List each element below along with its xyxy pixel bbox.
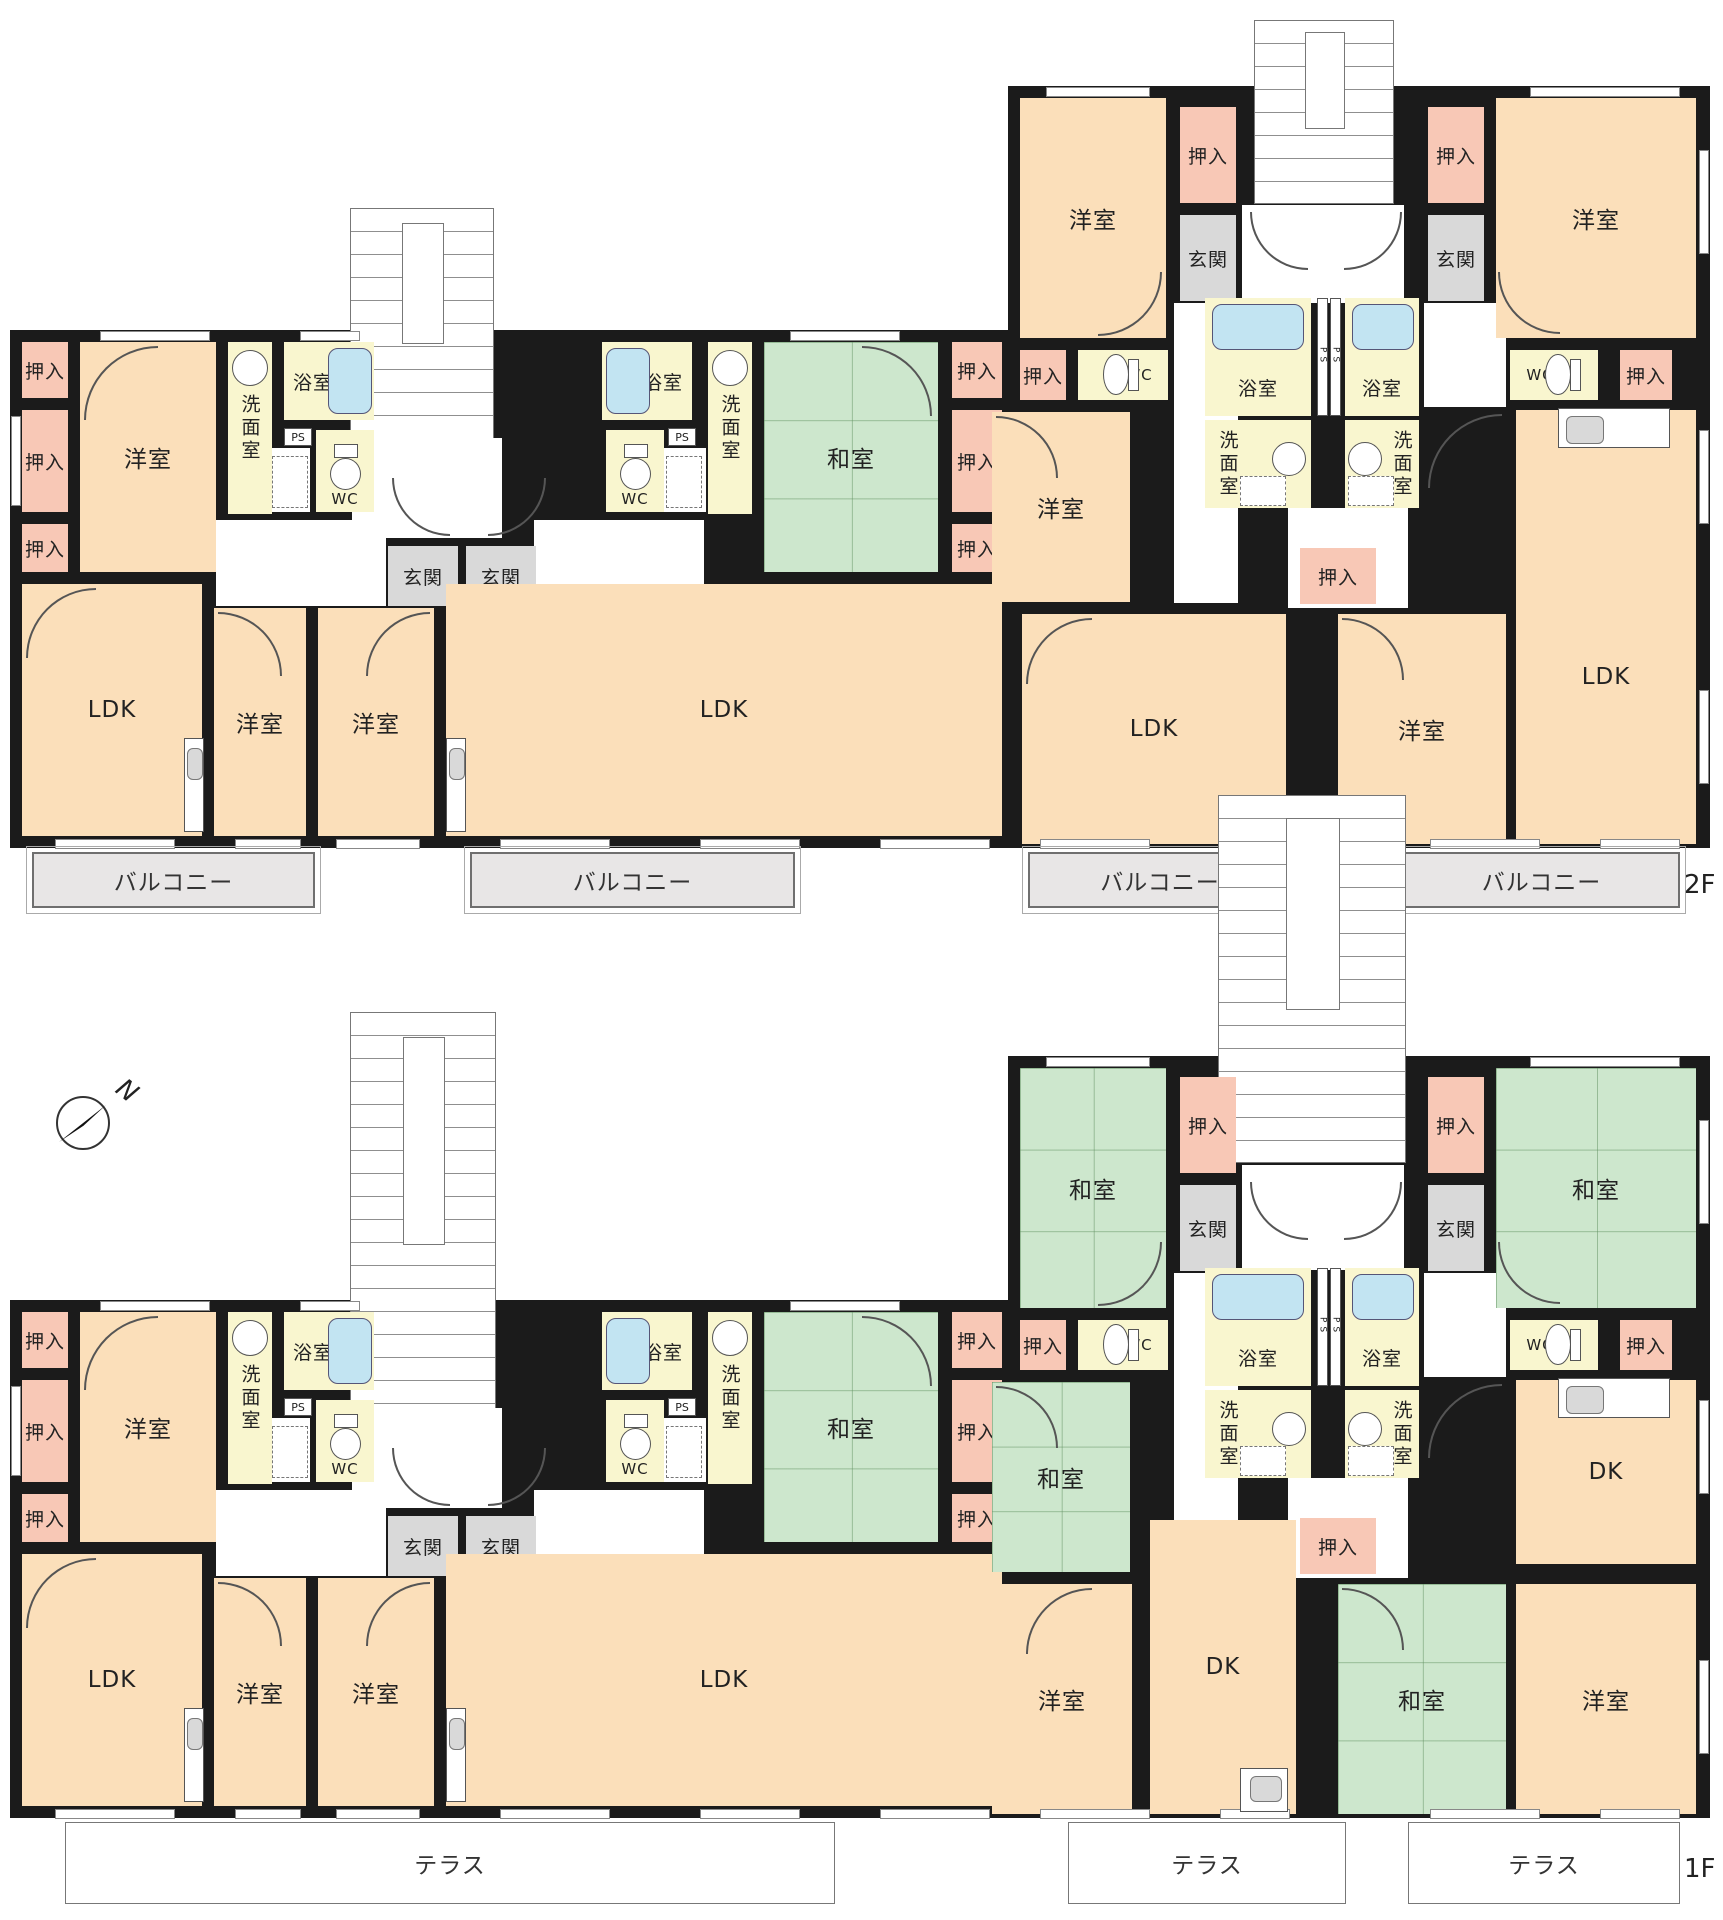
room-label: 洋室: [1069, 201, 1117, 235]
room-label: 押入: [1626, 362, 1666, 389]
bathtub-icon: [606, 348, 650, 414]
toilet-icon: [328, 444, 362, 490]
room-label: 洗面室: [717, 394, 744, 463]
room-ps: PS: [1330, 1268, 1341, 1386]
room-label: 洋室: [124, 440, 172, 474]
window: [300, 331, 360, 341]
toilet-tank: [624, 444, 648, 458]
balcony-label: バルコニー: [114, 863, 234, 897]
room-label: LDK: [1582, 664, 1631, 690]
window: [11, 1386, 21, 1476]
hallway: [1424, 1273, 1506, 1377]
bathtub-icon: [1212, 304, 1304, 350]
compass: N: [56, 1096, 116, 1156]
toilet-bowl: [1103, 1324, 1129, 1366]
room-ps: PS: [1317, 1268, 1328, 1386]
room-ps: PS: [668, 1398, 696, 1416]
room-label: PS: [675, 431, 689, 444]
washer-space: [272, 456, 308, 508]
window: [700, 1809, 800, 1819]
room-label: WC: [621, 490, 648, 508]
toilet-icon: [1103, 1321, 1139, 1367]
room-label: PS: [1331, 1317, 1341, 1336]
toilet-tank: [1570, 359, 1581, 390]
window: [1046, 87, 1150, 97]
hallway: [1424, 303, 1506, 407]
room-label: 玄関: [1188, 1215, 1228, 1242]
room-label: 洋室: [1398, 712, 1446, 746]
compass-circle: [56, 1096, 110, 1150]
room-label: 押入: [1023, 1332, 1063, 1359]
room-genkan: 玄関: [1428, 215, 1484, 301]
toilet-bowl: [1103, 354, 1129, 396]
balcony-label: バルコニー: [1482, 863, 1602, 897]
room-label: 押入: [1188, 1112, 1228, 1139]
balcony-label: バルコニー: [1100, 863, 1220, 897]
window: [790, 331, 900, 341]
room-ps: PS: [284, 428, 312, 446]
window: [1699, 430, 1709, 524]
terrace: テラス: [1068, 1822, 1346, 1904]
terrace-label: テラス: [1508, 1846, 1580, 1880]
balcony: バルコニー: [470, 852, 795, 908]
toilet-tank: [334, 444, 358, 458]
hallway: [216, 1490, 386, 1576]
room-label: 洋室: [124, 1410, 172, 1444]
room-genkan: 玄関: [1428, 1185, 1484, 1271]
window: [1699, 1660, 1709, 1754]
bathtub-icon: [1352, 1274, 1414, 1320]
room-label: WC: [331, 490, 358, 508]
washer-space: [666, 456, 702, 508]
window: [336, 839, 420, 849]
washer-space: [1348, 1446, 1394, 1476]
hallway: [216, 520, 386, 606]
room-oshiire: 押入: [1620, 350, 1672, 400]
room-label: 洗面室: [1215, 1400, 1242, 1469]
kitchen-sink-icon: [187, 748, 203, 780]
washbasin-icon: [1272, 442, 1306, 476]
kitchen-sink-icon: [1566, 416, 1604, 444]
room-label: LDK: [88, 697, 137, 723]
room-oshiire: 押入: [22, 524, 68, 572]
window: [500, 839, 610, 849]
room-label: 押入: [957, 357, 997, 384]
washer-space: [1240, 476, 1286, 506]
toilet-tank: [1128, 359, 1139, 390]
window: [700, 839, 800, 849]
room-oshiire: 押入: [1300, 548, 1376, 604]
room-label: 玄関: [403, 563, 443, 590]
room-label: PS: [291, 431, 305, 444]
staircase: [1254, 20, 1394, 204]
room-label: 押入: [25, 535, 65, 562]
window: [55, 839, 175, 849]
room-label: 和室: [1037, 1460, 1085, 1494]
room-oshiire: 押入: [1020, 1320, 1066, 1370]
toilet-tank: [624, 1414, 648, 1428]
staircase-rail: [1286, 818, 1340, 1010]
window: [1040, 839, 1150, 849]
washer-space: [1348, 476, 1394, 506]
kitchen-sink-icon: [187, 1718, 203, 1750]
room-label: 押入: [1188, 142, 1228, 169]
room-ps: PS: [284, 1398, 312, 1416]
window: [1040, 1809, 1150, 1819]
room-genkan: 玄関: [1180, 215, 1236, 301]
window: [336, 1809, 420, 1819]
room-label: 洋室: [236, 705, 284, 739]
window: [1699, 1120, 1709, 1224]
washbasin-icon: [712, 350, 748, 386]
bathtub-icon: [328, 1318, 372, 1384]
room-oshiire: 押入: [22, 342, 68, 398]
room-label: 浴室: [1362, 1344, 1402, 1371]
floor-label: 2F: [1684, 870, 1716, 900]
room-label: 押入: [25, 448, 65, 475]
room-label: 玄関: [1436, 245, 1476, 272]
room-label: LDK: [1130, 716, 1179, 742]
toilet-bowl: [620, 458, 651, 490]
window: [100, 1301, 210, 1311]
room-genkan: 玄関: [1180, 1185, 1236, 1271]
kitchen-sink-icon: [449, 748, 465, 780]
room-oshiire: 押入: [22, 410, 68, 512]
staircase-rail: [1305, 32, 1346, 129]
window: [1600, 1809, 1680, 1819]
room-label: PS: [1331, 347, 1341, 366]
window: [1699, 690, 1709, 784]
room-label: 洋室: [1037, 490, 1085, 524]
window: [1530, 87, 1680, 97]
room-label: 洋室: [1582, 1682, 1630, 1716]
room-label: 押入: [957, 1418, 997, 1445]
room-label: 和室: [1069, 1171, 1117, 1205]
room-label: PS: [291, 1401, 305, 1414]
room-label: 押入: [1436, 1112, 1476, 1139]
room-ps: PS: [1317, 298, 1328, 416]
room-label: LDK: [700, 697, 749, 723]
room-oshiire: 押入: [1020, 350, 1066, 400]
room-label: 押入: [1318, 1533, 1358, 1560]
balcony: バルコニー: [1403, 852, 1680, 908]
room-label: 押入: [25, 357, 65, 384]
floor-label: 1F: [1684, 1854, 1716, 1884]
window: [11, 416, 21, 506]
window: [1600, 839, 1680, 849]
bathtub-icon: [1352, 304, 1414, 350]
washbasin-icon: [232, 350, 268, 386]
toilet-bowl: [620, 1428, 651, 1460]
toilet-bowl: [1545, 1324, 1571, 1366]
compass-north-label: N: [109, 1073, 143, 1109]
room-label: 洗面室: [1215, 430, 1242, 499]
room-label: 洋室: [236, 1675, 284, 1709]
room-label: 浴室: [293, 1338, 333, 1365]
window: [235, 839, 301, 849]
room-ldk: LDK: [446, 1554, 1002, 1806]
room-label: 洋室: [352, 1675, 400, 1709]
room-oshiire: 押入: [1300, 1518, 1376, 1574]
kitchen-sink-icon: [449, 1718, 465, 1750]
room-label: 洋室: [1572, 201, 1620, 235]
room-oshiire: 押入: [22, 1494, 68, 1542]
floorplan: N 押入押入押入洋室洗面室浴室PSWC玄関LDK洋室玄関WCPS浴室洗面室和室押…: [0, 0, 1723, 1920]
window: [790, 1301, 900, 1311]
terrace: テラス: [1408, 1822, 1680, 1904]
room-label: 押入: [957, 535, 997, 562]
room-label: 玄関: [1188, 245, 1228, 272]
room-oshiire: 押入: [952, 342, 1002, 398]
room-label: 洗面室: [237, 1364, 264, 1433]
bathtub-icon: [328, 348, 372, 414]
room-oshiire: 押入: [1428, 1077, 1484, 1173]
bathtub-icon: [1212, 1274, 1304, 1320]
window: [300, 1301, 360, 1311]
room-label: 玄関: [1436, 1215, 1476, 1242]
room-label: 押入: [957, 1327, 997, 1354]
washbasin-icon: [232, 1320, 268, 1356]
toilet-icon: [618, 1414, 652, 1460]
room-oshiire: 押入: [1180, 1077, 1236, 1173]
window: [880, 839, 990, 849]
window: [1699, 150, 1709, 254]
kitchen-sink-icon: [1566, 1386, 1604, 1414]
staircase: [1218, 795, 1406, 1163]
room-label: 浴室: [1238, 1344, 1278, 1371]
window: [1699, 1400, 1709, 1494]
washbasin-icon: [712, 1320, 748, 1356]
room-oshiire: 押入: [22, 1380, 68, 1482]
room-ldk: LDK: [446, 584, 1002, 836]
room-label: LDK: [88, 1667, 137, 1693]
window: [500, 1809, 610, 1819]
room-oshiire: 押入: [1620, 1320, 1672, 1370]
toilet-icon: [1545, 1321, 1581, 1367]
washbasin-icon: [1348, 442, 1382, 476]
washbasin-icon: [1348, 1412, 1382, 1446]
room-label: 浴室: [1238, 374, 1278, 401]
room-ps: PS: [1330, 298, 1341, 416]
staircase-rail: [402, 223, 444, 345]
room-oshiire: 押入: [1428, 107, 1484, 203]
room-youshitsu: 洋室: [1516, 1584, 1696, 1814]
room-oshiire: 押入: [952, 1312, 1002, 1368]
balcony: バルコニー: [32, 852, 315, 908]
room-label: 和室: [827, 440, 875, 474]
window: [1046, 1057, 1150, 1067]
window: [880, 1809, 990, 1819]
room-label: 洋室: [1038, 1682, 1086, 1716]
room-oshiire: 押入: [22, 1312, 68, 1368]
room-label: WC: [331, 1460, 358, 1478]
balcony-label: バルコニー: [573, 863, 693, 897]
toilet-bowl: [330, 1428, 361, 1460]
room-label: 押入: [25, 1327, 65, 1354]
room-label: 押入: [25, 1418, 65, 1445]
room-label: 押入: [957, 448, 997, 475]
room-label: DK: [1206, 1654, 1241, 1680]
room-label: 押入: [957, 1505, 997, 1532]
room-ldk: LDK: [1516, 410, 1696, 844]
room-label: 浴室: [293, 368, 333, 395]
terrace: テラス: [65, 1822, 835, 1904]
window: [55, 1809, 175, 1819]
kitchen-sink-icon: [1250, 1776, 1282, 1802]
room-label: 玄関: [403, 1533, 443, 1560]
toilet-bowl: [1545, 354, 1571, 396]
terrace-label: テラス: [414, 1846, 486, 1880]
toilet-icon: [618, 444, 652, 490]
toilet-tank: [1570, 1329, 1581, 1360]
toilet-icon: [328, 1414, 362, 1460]
room-label: WC: [621, 1460, 648, 1478]
washbasin-icon: [1272, 1412, 1306, 1446]
room-label: 和室: [1572, 1171, 1620, 1205]
room-label: 和室: [1398, 1682, 1446, 1716]
washer-space: [666, 1426, 702, 1478]
staircase-rail: [403, 1037, 445, 1245]
room-label: PS: [675, 1401, 689, 1414]
room-label: 洗面室: [717, 1364, 744, 1433]
window: [1430, 839, 1540, 849]
room-label: 洗面室: [237, 394, 264, 463]
room-label: 押入: [1436, 142, 1476, 169]
terrace-label: テラス: [1171, 1846, 1243, 1880]
toilet-tank: [334, 1414, 358, 1428]
room-label: PS: [1318, 347, 1328, 366]
window: [100, 331, 210, 341]
window: [1530, 1057, 1680, 1067]
toilet-icon: [1545, 351, 1581, 397]
window: [1430, 1809, 1540, 1819]
room-label: DK: [1589, 1459, 1624, 1485]
room-label: 和室: [827, 1410, 875, 1444]
washer-space: [272, 1426, 308, 1478]
room-label: 洋室: [352, 705, 400, 739]
room-label: LDK: [700, 1667, 749, 1693]
washer-space: [1240, 1446, 1286, 1476]
room-label: 押入: [1626, 1332, 1666, 1359]
room-label: 押入: [1318, 563, 1358, 590]
room-label: 押入: [1023, 362, 1063, 389]
room-label: 押入: [25, 1505, 65, 1532]
room-ps: PS: [668, 428, 696, 446]
toilet-bowl: [330, 458, 361, 490]
bathtub-icon: [606, 1318, 650, 1384]
toilet-icon: [1103, 351, 1139, 397]
room-label: 浴室: [1362, 374, 1402, 401]
room-oshiire: 押入: [1180, 107, 1236, 203]
room-label: PS: [1318, 1317, 1328, 1336]
window: [235, 1809, 301, 1819]
toilet-tank: [1128, 1329, 1139, 1360]
